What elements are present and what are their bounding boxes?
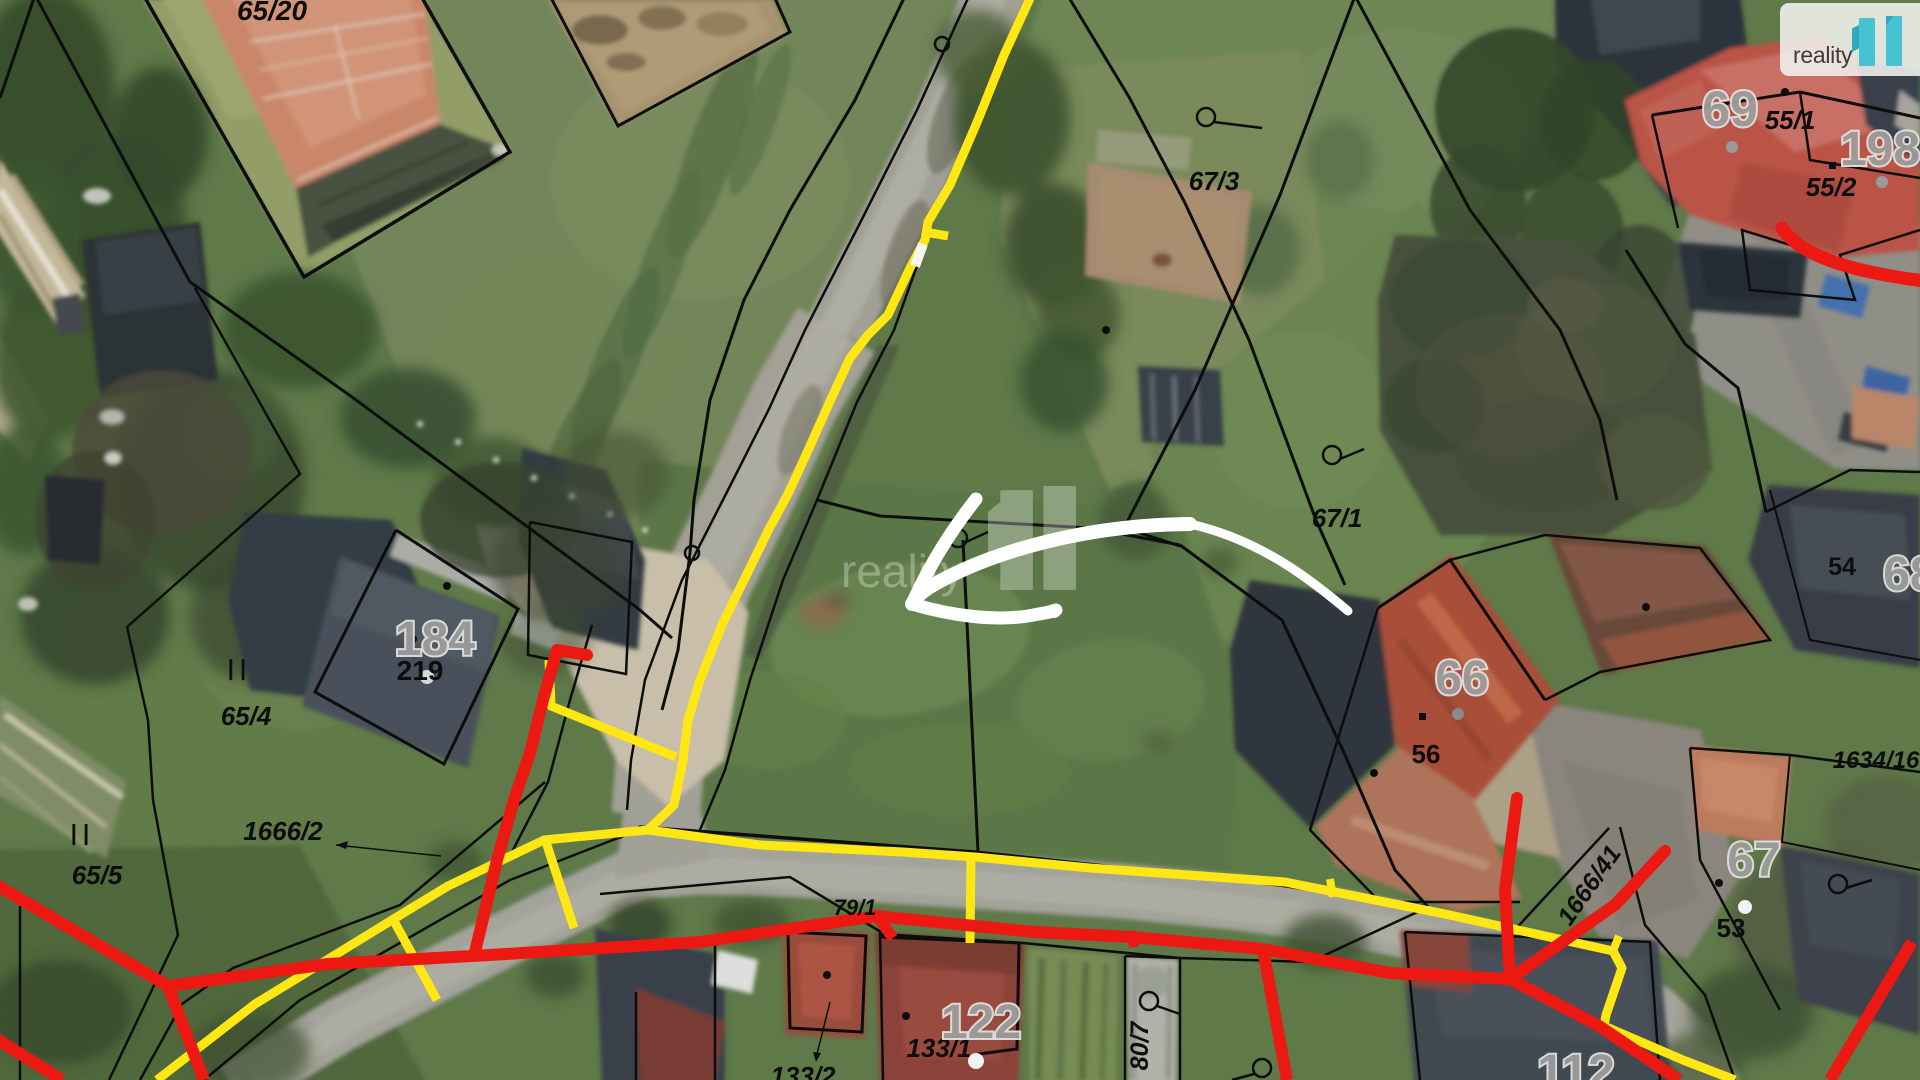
svg-text:133/2: 133/2 [770,1061,836,1080]
svg-text:122: 122 [941,996,1021,1049]
svg-text:1634/16: 1634/16 [1833,747,1920,774]
svg-text:65/5: 65/5 [72,860,123,890]
svg-text:| |: | | [228,655,246,680]
svg-text:65/20: 65/20 [237,0,307,26]
svg-text:53: 53 [1717,913,1746,943]
svg-text:198: 198 [1840,123,1920,176]
svg-text:67/3: 67/3 [1189,166,1240,196]
svg-text:112: 112 [1537,1046,1614,1080]
svg-text:65/4: 65/4 [221,701,272,731]
svg-text:68: 68 [1883,548,1920,601]
svg-text:67/1: 67/1 [1312,503,1363,533]
svg-text:67: 67 [1727,834,1780,887]
svg-text:reality: reality [1793,42,1853,68]
svg-text:54: 54 [1828,553,1856,581]
svg-text:80/7: 80/7 [1126,1021,1154,1071]
svg-text:184: 184 [395,613,475,666]
svg-text:56: 56 [1412,739,1441,769]
svg-text:66: 66 [1435,652,1488,705]
svg-text:79/1: 79/1 [834,895,877,920]
svg-text:69: 69 [1702,81,1758,137]
svg-text:1666/2: 1666/2 [243,816,323,846]
svg-text:55/2: 55/2 [1806,172,1857,202]
svg-text:| |: | | [71,820,89,845]
svg-text:55/1: 55/1 [1765,105,1816,135]
